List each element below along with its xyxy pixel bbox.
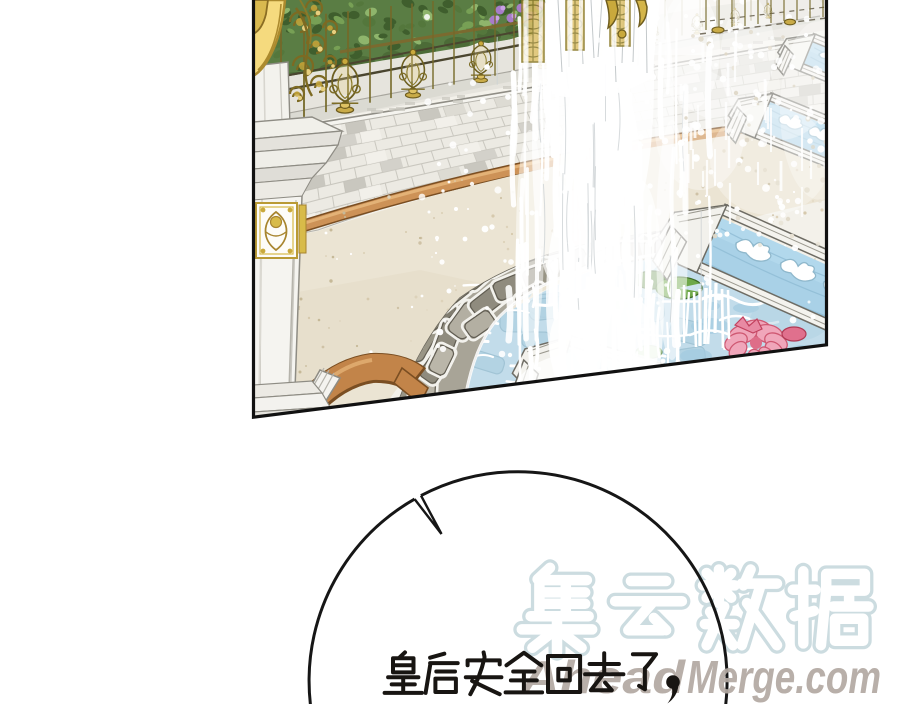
svg-text:Merge.com: Merge.com bbox=[687, 651, 881, 703]
